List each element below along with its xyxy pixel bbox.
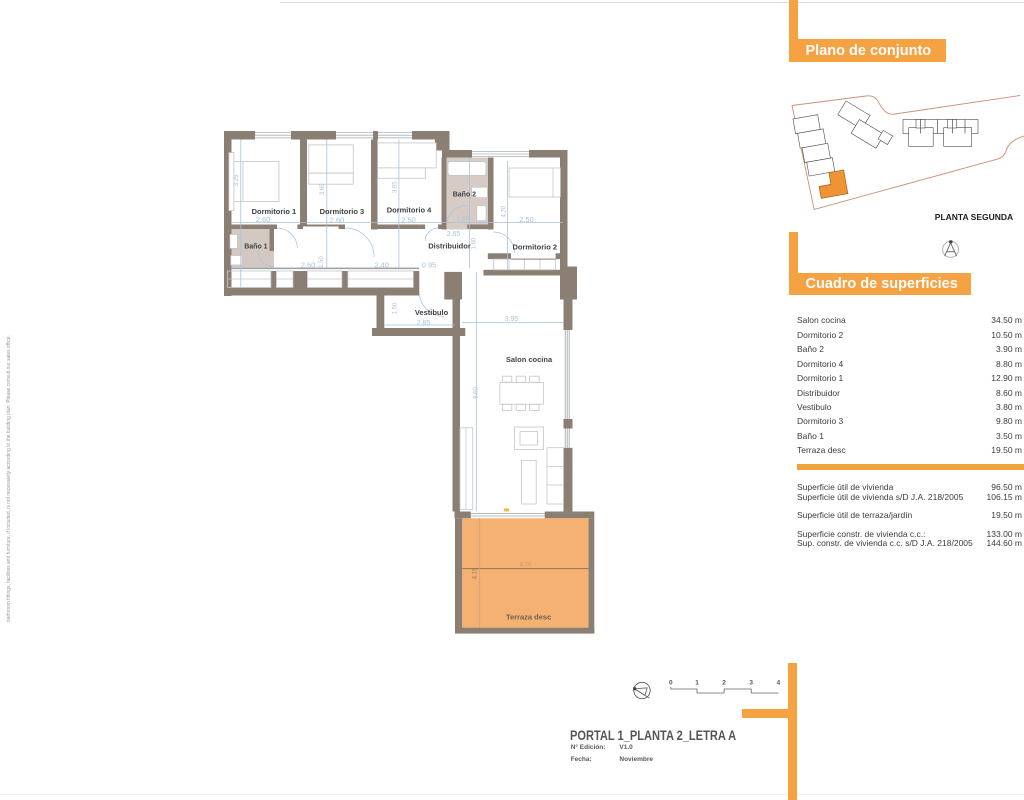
svg-text:1.60: 1.60 (457, 216, 470, 223)
svg-text:Dormitorio 2: Dormitorio 2 (513, 243, 558, 252)
svg-text:2.60: 2.60 (330, 215, 345, 224)
svg-text:4.20: 4.20 (502, 205, 508, 217)
svg-text:2.50: 2.50 (519, 215, 534, 224)
svg-text:2: 2 (722, 680, 726, 687)
svg-text:2.50: 2.50 (401, 215, 416, 224)
svg-text:Baño 2: Baño 2 (453, 191, 476, 198)
svg-text:Vestibulo: Vestibulo (415, 308, 449, 317)
svg-text:3.65: 3.65 (392, 181, 398, 193)
svg-text:8.60: 8.60 (474, 387, 480, 399)
svg-text:2.60: 2.60 (256, 215, 271, 224)
svg-text:1: 1 (695, 680, 699, 687)
svg-text:3: 3 (749, 680, 753, 687)
svg-text:0: 0 (669, 680, 673, 687)
svg-text:3.25: 3.25 (234, 174, 240, 186)
svg-text:0.95: 0.95 (422, 261, 437, 270)
svg-text:1.50: 1.50 (319, 256, 325, 268)
svg-text:2.65: 2.65 (447, 231, 461, 238)
svg-text:Terraza desc: Terraza desc (506, 613, 551, 622)
svg-text:3.95: 3.95 (505, 316, 519, 323)
svg-text:Distribuidor: Distribuidor (428, 242, 471, 251)
svg-text:Baño 1: Baño 1 (244, 244, 267, 251)
svg-text:2.60: 2.60 (301, 261, 316, 270)
svg-text:Dormitorio 4: Dormitorio 4 (387, 206, 432, 215)
svg-text:2.40: 2.40 (374, 261, 389, 270)
svg-text:3.65: 3.65 (320, 183, 326, 195)
svg-text:2.85: 2.85 (417, 320, 431, 327)
svg-text:4.15: 4.15 (473, 567, 479, 579)
svg-text:1.50: 1.50 (392, 302, 398, 314)
svg-text:1.60: 1.60 (471, 237, 477, 249)
svg-text:4: 4 (777, 680, 781, 687)
svg-text:bathroom fittings, facilities: bathroom fittings, facilities and furnit… (6, 335, 12, 622)
svg-text:4.70: 4.70 (520, 563, 532, 569)
svg-text:Salon cocina: Salon cocina (506, 355, 553, 364)
